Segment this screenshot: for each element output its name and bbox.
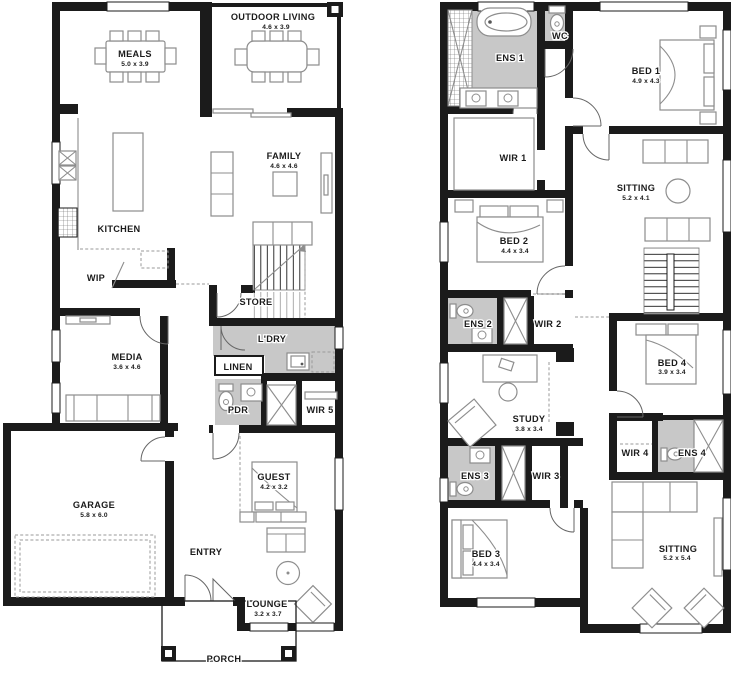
room-label-media: MEDIA <box>111 352 142 362</box>
bathtub-icon <box>477 8 531 36</box>
oven-icon <box>58 208 77 237</box>
room-dims-meals: 5.0 x 3.9 <box>121 61 149 68</box>
room-label-sitting-upper: SITTING <box>617 183 655 193</box>
room-dims-sitting-upper: 5.2 x 4.1 <box>622 195 650 202</box>
room-label-wir1: WIR 1 <box>499 153 526 163</box>
room-label-wc: WC <box>552 31 568 41</box>
floor-plan-drawing: MEALS 5.0 x 3.9 OUTDOOR LIVING 4.6 x 3.9… <box>0 0 731 682</box>
kitchen-island <box>113 133 143 211</box>
robe-icon <box>267 385 296 425</box>
cooktop-icon <box>59 151 76 180</box>
room-dims-media: 3.6 x 4.6 <box>113 364 141 371</box>
room-label-ens2: ENS 2 <box>464 319 492 329</box>
upper-floor-plan <box>440 2 731 633</box>
round-table-icon <box>666 179 690 203</box>
shower-icon <box>694 420 723 472</box>
toilet-icon <box>450 304 473 318</box>
basin-icon <box>241 384 262 401</box>
room-label-garage: GARAGE <box>73 500 115 510</box>
room-label-ldry: L'DRY <box>258 334 286 344</box>
room-label-outdoor-living: OUTDOOR LIVING <box>231 12 315 22</box>
toilet-icon <box>549 6 565 32</box>
room-label-family: FAMILY <box>267 151 302 161</box>
bed1-icon <box>660 26 716 124</box>
shower-icon <box>504 298 527 344</box>
shower-icon <box>502 446 525 500</box>
room-label-sitting-lower: SITTING <box>659 544 697 554</box>
room-dims-family: 4.6 x 4.6 <box>270 163 298 170</box>
room-label-wir2: WIR 2 <box>534 319 561 329</box>
room-label-ens4: ENS 4 <box>678 448 707 458</box>
room-dims-lounge: 3.2 x 3.7 <box>254 611 282 618</box>
outdoor-table <box>235 31 319 82</box>
room-dims-bed2: 4.4 x 3.4 <box>501 248 529 255</box>
kitchen-bench <box>58 118 143 288</box>
room-label-meals: MEALS <box>118 49 152 59</box>
wir5-shelf <box>305 392 337 399</box>
room-label-wir3: WIR 3 <box>532 471 559 481</box>
room-dims-guest: 4.2 x 3.2 <box>260 484 288 491</box>
room-dims-garage: 5.8 x 6.0 <box>80 512 108 519</box>
room-label-linen: LINEN <box>223 362 252 372</box>
room-label-guest: GUEST <box>257 472 290 482</box>
room-label-study: STUDY <box>513 414 546 424</box>
ground-floor-plan <box>3 2 343 661</box>
room-label-bed3: BED 3 <box>472 549 501 559</box>
room-dims-bed3: 4.4 x 3.4 <box>472 561 500 568</box>
room-label-wir5: WIR 5 <box>306 405 333 415</box>
armchair-icon <box>684 588 724 628</box>
room-label-store: STORE <box>240 297 273 307</box>
garage-car-space <box>15 535 155 597</box>
room-label-entry: ENTRY <box>190 547 222 557</box>
study-furniture <box>448 355 537 447</box>
room-label-bed1: BED 1 <box>632 66 661 76</box>
armchair-icon <box>295 586 332 623</box>
room-label-pdr: PDR <box>228 405 248 415</box>
toilet-icon <box>450 482 473 496</box>
room-label-bed4: BED 4 <box>658 358 687 368</box>
basin-icon <box>470 448 490 463</box>
guest-bed-icon <box>240 462 306 522</box>
room-label-wip: WIP <box>87 273 105 283</box>
room-label-ens3: ENS 3 <box>461 471 489 481</box>
room-label-lounge: LOUNGE <box>246 599 287 609</box>
chair-icon <box>499 383 517 401</box>
room-label-bed2: BED 2 <box>500 236 529 246</box>
room-label-wir4: WIR 4 <box>621 448 649 458</box>
room-label-kitchen: KITCHEN <box>98 224 141 234</box>
armchair-icon <box>632 588 672 628</box>
room-dims-study: 3.8 x 3.4 <box>515 426 543 433</box>
upper-stairs <box>644 248 699 314</box>
tv-unit-icon <box>714 518 722 576</box>
floor-plan-canvas: MEALS 5.0 x 3.9 OUTDOOR LIVING 4.6 x 3.9… <box>0 0 731 682</box>
room-dims-bed1: 4.9 x 4.3 <box>632 78 660 85</box>
room-dims-bed4: 3.9 x 3.4 <box>658 369 686 376</box>
room-dims-sitting-lower: 5.2 x 5.4 <box>663 555 691 562</box>
basin-icon <box>472 328 492 343</box>
room-label-porch: PORCH <box>207 654 242 664</box>
room-label-ens1: ENS 1 <box>496 53 524 63</box>
room-dims-outdoor-living: 4.6 x 3.9 <box>262 24 290 31</box>
double-basin-icon <box>460 88 537 108</box>
